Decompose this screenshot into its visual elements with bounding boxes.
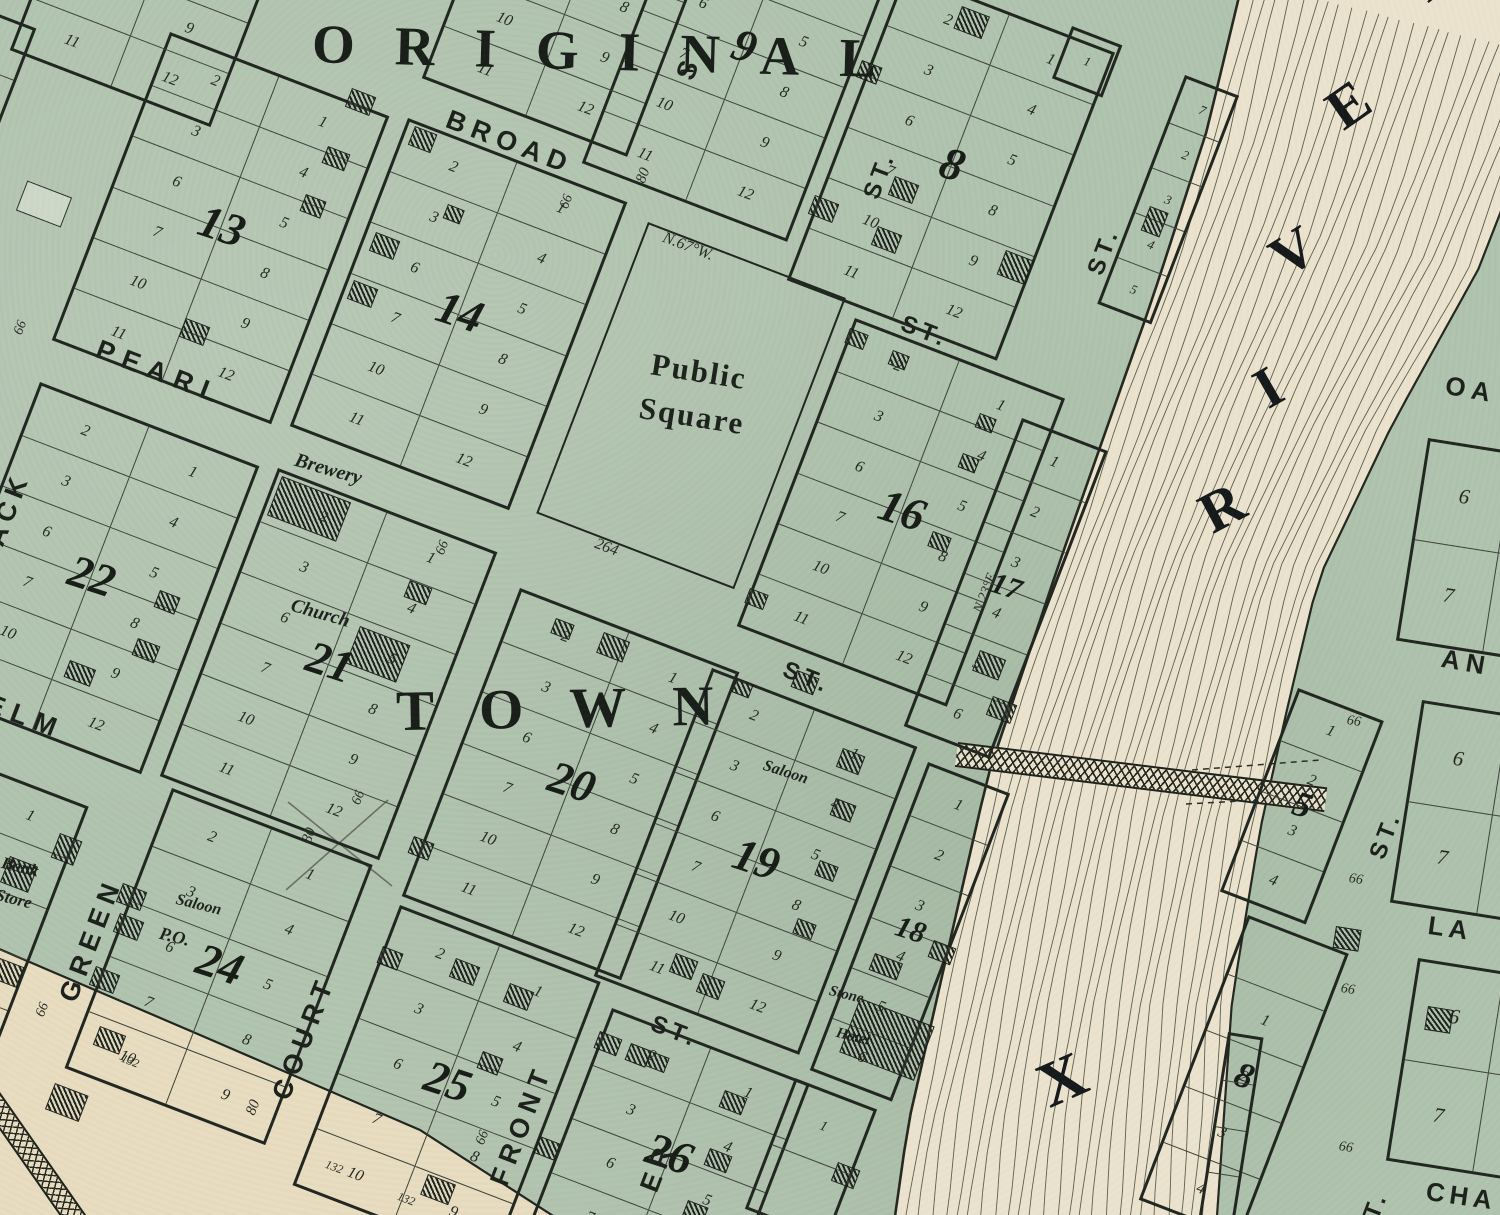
lot: 6 <box>1409 703 1500 815</box>
dimension-label-66: 66 <box>1346 714 1362 730</box>
dimension-label-66: 66 <box>1338 1140 1354 1156</box>
lot: 7 <box>1393 802 1491 913</box>
lot <box>1209 1127 1246 1177</box>
dimension-label-66: 66 <box>1340 982 1356 998</box>
lot <box>1202 1172 1239 1215</box>
building <box>1424 1006 1453 1034</box>
lot: 7 <box>1399 540 1497 651</box>
lot <box>1223 1035 1260 1085</box>
lot <box>1216 1081 1253 1131</box>
plat-map: 2367101114589121323671011145891214236710… <box>0 0 1500 1215</box>
lot: 7 <box>1389 1060 1487 1171</box>
street-label-la: LA <box>1426 912 1474 944</box>
map-title-town: TOWN <box>396 677 760 740</box>
public-square-label: Public Square <box>636 341 755 446</box>
map-title-original: ORIGINAL <box>311 16 916 87</box>
building <box>1333 926 1362 952</box>
dimension-label-66: 66 <box>1348 872 1364 888</box>
street-label-an: AN <box>1439 645 1492 679</box>
lot: 6 <box>1415 441 1500 553</box>
